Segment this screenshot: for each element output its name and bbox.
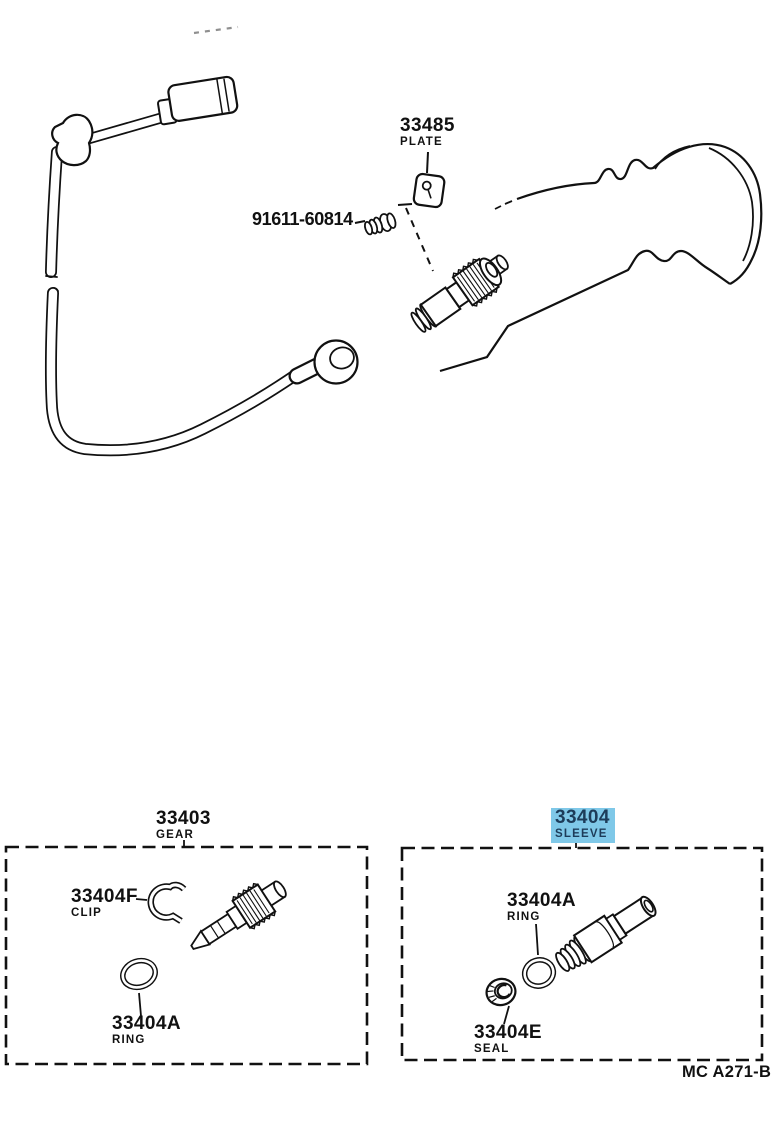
callout-sleeve-kit-highlighted[interactable]: 33404 SLEEVE (551, 808, 615, 843)
cable-lower-connector (315, 341, 358, 384)
driven-gear-sleeve-assembly-drawing (405, 245, 518, 341)
plate-part-drawing (413, 173, 445, 208)
callout-seal[interactable]: 33404E SEAL (474, 1025, 542, 1055)
part-code: 33404A (507, 893, 576, 909)
oring-sleeve-kit-leader-line (536, 924, 538, 955)
exploded-parts-artwork (0, 0, 784, 1136)
plate-leader-line (427, 152, 428, 173)
part-code: 33404F (71, 889, 138, 905)
part-name: GEAR (156, 829, 211, 841)
assembly-dashed-line (406, 208, 433, 271)
speedometer-cable-drawing (46, 76, 358, 450)
part-code: 33403 (156, 811, 211, 827)
cable-grommet (52, 115, 92, 165)
part-code: 33404 (555, 810, 610, 826)
part-name: CLIP (71, 907, 138, 919)
part-name: PLATE (400, 136, 455, 148)
callout-plate[interactable]: 33485 PLATE (400, 118, 455, 148)
callout-clip[interactable]: 33404F CLIP (71, 889, 138, 919)
bolt-leader-line (355, 221, 365, 223)
part-code: 33404E (474, 1025, 542, 1041)
part-code: 33404A (112, 1016, 181, 1032)
cable-upper-connector (156, 76, 239, 125)
part-code: 33485 (400, 118, 455, 134)
part-name: SLEEVE (555, 828, 610, 840)
gear-kit-box (6, 847, 367, 1064)
part-name: SEAL (474, 1043, 542, 1055)
extension-housing-drawing (440, 144, 761, 371)
oring-gear-kit-drawing (119, 957, 158, 992)
oring-sleeve-kit-drawing (521, 956, 557, 990)
parts-diagram-page: 33485 PLATE 91611-60814 33403 GEAR 33404… (0, 0, 784, 1136)
clip-part-drawing (151, 885, 184, 921)
callout-bolt[interactable]: 91611-60814 (252, 211, 353, 227)
driven-gear-drawing (181, 871, 293, 962)
callout-gear-kit[interactable]: 33403 GEAR (156, 811, 211, 841)
part-name: RING (507, 911, 576, 923)
figure-code: MC A271-B (682, 1063, 771, 1082)
callout-ring-gear-kit[interactable]: 33404A RING (112, 1016, 181, 1046)
part-code: 91611-60814 (252, 211, 353, 227)
callout-ring-sleeve-kit[interactable]: 33404A RING (507, 893, 576, 923)
cable-continuation-dashes (194, 27, 238, 33)
seal-part-drawing (484, 976, 519, 1009)
assembly-tick (398, 204, 412, 205)
bolt-part-drawing (363, 211, 398, 237)
part-name: RING (112, 1034, 181, 1046)
